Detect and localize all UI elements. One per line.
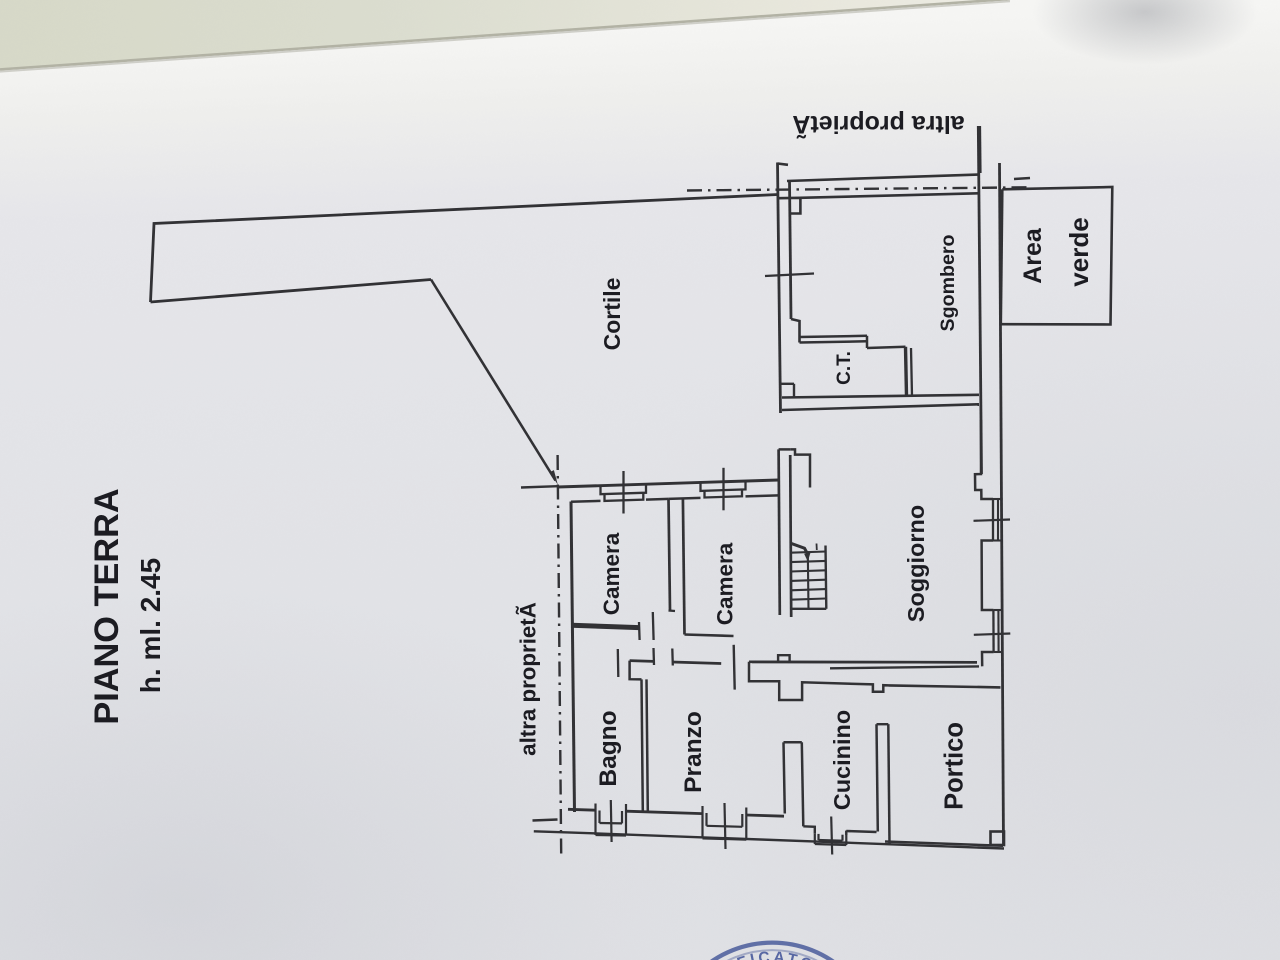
svg-text:altra proprietÃ: altra proprietÃ — [516, 602, 541, 756]
svg-text:Cortile: Cortile — [599, 278, 625, 351]
svg-text:Camera: Camera — [599, 532, 624, 615]
svg-text:Bagno: Bagno — [595, 710, 622, 786]
svg-text:C.T.: C.T. — [834, 351, 855, 385]
svg-text:Cucinino: Cucinino — [829, 710, 855, 811]
svg-text:Soggiorno: Soggiorno — [903, 505, 929, 622]
svg-text:Sgombero: Sgombero — [937, 235, 959, 332]
svg-text:h. ml. 2.45: h. ml. 2.45 — [135, 558, 166, 693]
svg-text:Pranzo: Pranzo — [680, 711, 707, 793]
svg-text:Area: Area — [1019, 227, 1047, 284]
svg-text:altra proprietÃ: altra proprietÃ — [792, 110, 964, 140]
svg-text:PIANO TERRA: PIANO TERRA — [88, 488, 126, 724]
svg-text:verde: verde — [1064, 217, 1094, 286]
svg-text:Camera: Camera — [713, 542, 738, 625]
svg-text:Portico: Portico — [941, 722, 969, 810]
